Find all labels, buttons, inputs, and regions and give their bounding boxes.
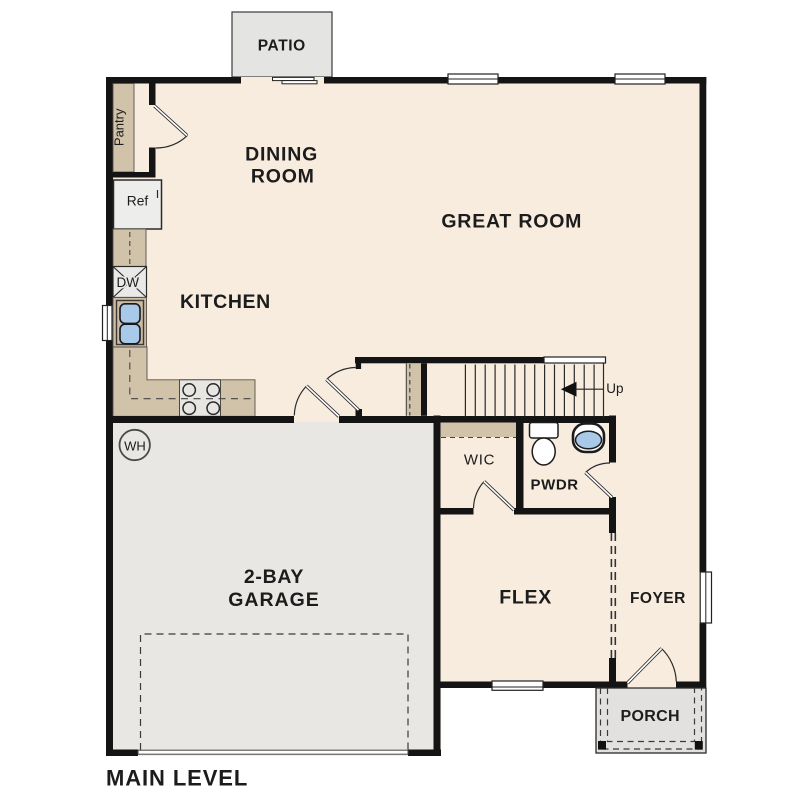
svg-text:PWDR: PWDR <box>530 477 578 494</box>
svg-text:DW: DW <box>117 275 140 290</box>
svg-text:GREAT ROOM: GREAT ROOM <box>441 211 582 233</box>
svg-text:Up: Up <box>606 381 623 396</box>
svg-text:PORCH: PORCH <box>621 708 680 725</box>
svg-text:GARAGE: GARAGE <box>228 589 320 611</box>
svg-text:Ref: Ref <box>127 193 149 208</box>
svg-text:WIC: WIC <box>464 452 495 469</box>
svg-text:WH: WH <box>124 438 146 453</box>
svg-text:MAIN LEVEL: MAIN LEVEL <box>106 766 248 791</box>
svg-text:FOYER: FOYER <box>630 590 686 607</box>
svg-text:Pantry: Pantry <box>112 108 127 146</box>
svg-text:FLEX: FLEX <box>499 586 552 608</box>
svg-text:ROOM: ROOM <box>251 166 315 188</box>
svg-text:2-BAY: 2-BAY <box>244 566 304 588</box>
svg-text:PATIO: PATIO <box>258 38 306 55</box>
svg-text:KITCHEN: KITCHEN <box>180 291 271 313</box>
svg-text:DINING: DINING <box>245 143 318 165</box>
